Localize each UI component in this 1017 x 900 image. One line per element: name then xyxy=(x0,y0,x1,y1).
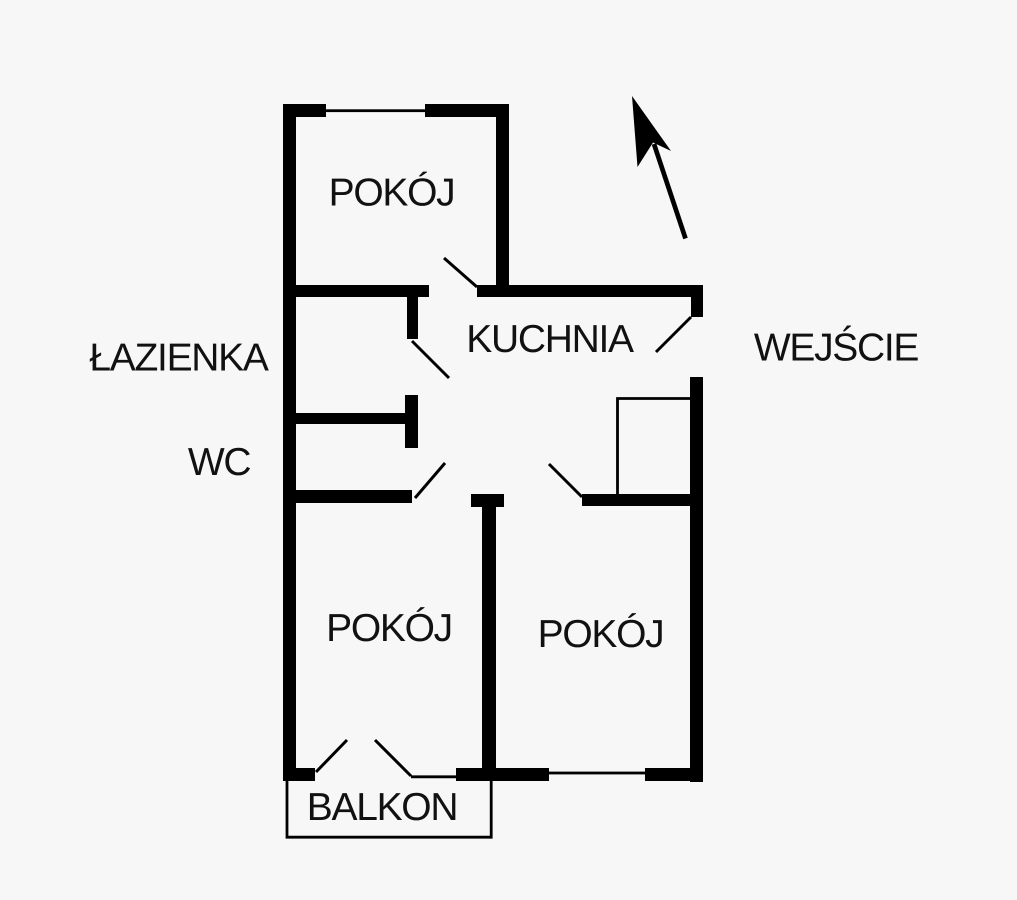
svg-text:ŁAZIENKA: ŁAZIENKA xyxy=(89,337,268,380)
svg-text:POKÓJ: POKÓJ xyxy=(326,607,452,650)
svg-text:KUCHNIA: KUCHNIA xyxy=(466,318,634,361)
svg-text:BALKON: BALKON xyxy=(307,786,457,829)
svg-text:POKÓJ: POKÓJ xyxy=(538,613,664,656)
svg-text:WC: WC xyxy=(188,441,251,484)
svg-text:WEJŚCIE: WEJŚCIE xyxy=(754,326,919,370)
svg-text:POKÓJ: POKÓJ xyxy=(329,172,455,215)
